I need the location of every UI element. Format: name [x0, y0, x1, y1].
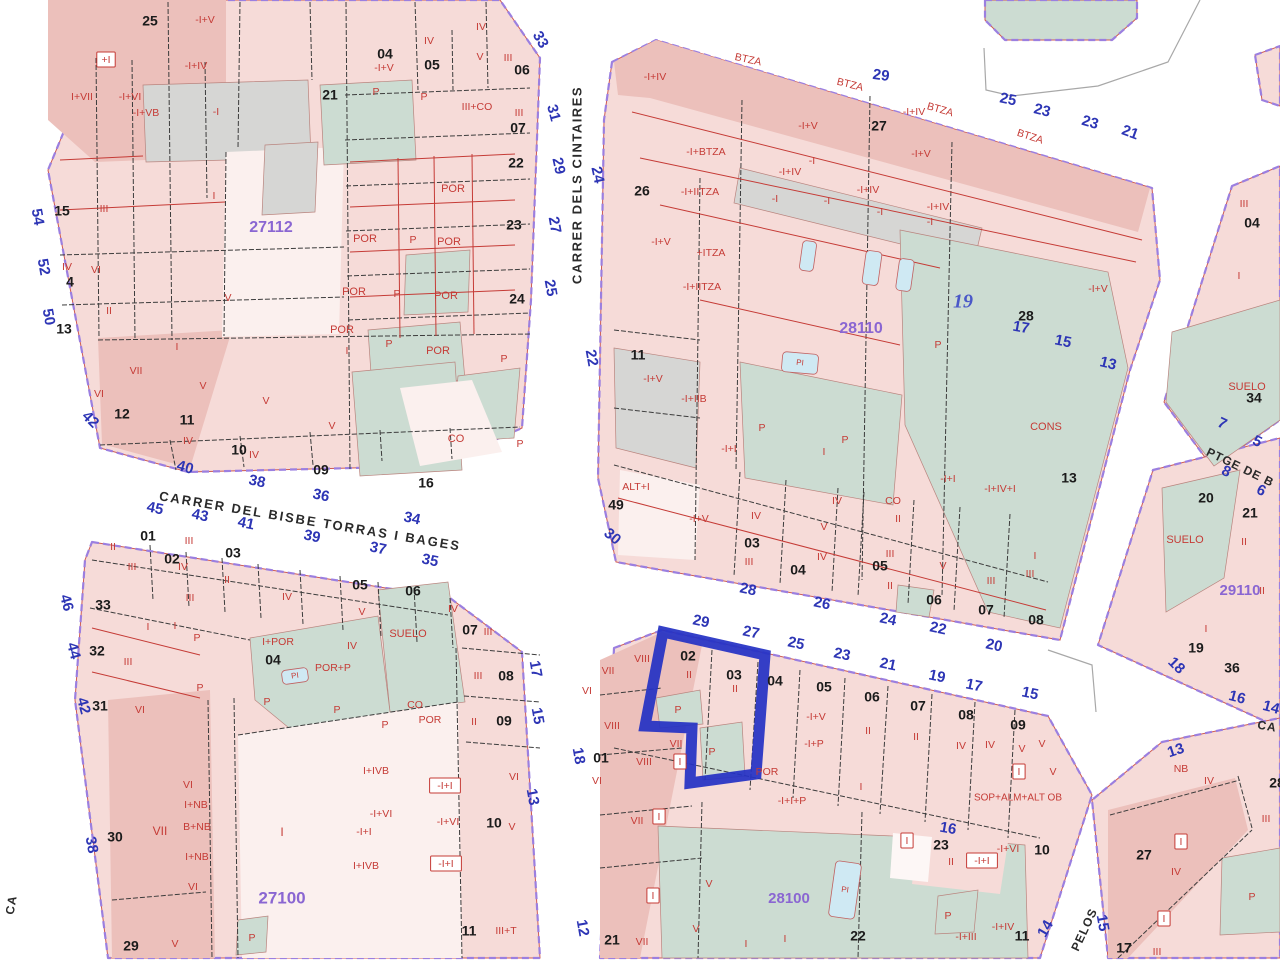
construction-code-label: -I+V — [643, 373, 663, 385]
construction-code-label: II — [1241, 536, 1247, 548]
parcel-number-label[interactable]: 06 — [864, 689, 880, 705]
street-number-label: 46 — [56, 593, 77, 614]
construction-code-label: I+IVB — [363, 765, 389, 777]
street-number-label: 21 — [1119, 122, 1140, 144]
construction-code-label: POR — [419, 714, 442, 726]
construction-code-label: I+IVB — [353, 860, 379, 872]
construction-code-label: P — [841, 434, 848, 446]
construction-code-label: I — [823, 446, 826, 458]
street-number-label: 35 — [420, 550, 440, 570]
construction-code-label: P — [409, 234, 416, 246]
construction-code-label: IV — [1204, 775, 1214, 787]
construction-code-label: -I+IV — [903, 106, 925, 118]
street-number-label: 23 — [832, 644, 852, 664]
construction-code-label: -I+I — [437, 780, 452, 792]
construction-code-label: I+POR — [262, 636, 294, 648]
construction-code-label: I — [658, 811, 661, 823]
pool-label: PI — [796, 358, 804, 368]
construction-code-label: -I — [772, 193, 778, 205]
construction-code-label: -I+IITZA — [681, 186, 719, 198]
construction-code-label: -I+I — [721, 443, 736, 455]
construction-code-label: I+VII — [71, 91, 93, 103]
construction-code-label: -I — [824, 195, 830, 207]
construction-code-label: POR — [342, 286, 366, 298]
street-number-label: 13 — [523, 787, 543, 806]
construction-code-label: I — [679, 756, 682, 768]
construction-code-label: -I+V — [806, 711, 826, 723]
construction-code-label: -I+IITZA — [683, 281, 721, 293]
construction-code-label: POR — [426, 345, 450, 357]
construction-code-label: -I+III — [955, 931, 976, 943]
construction-code-label: III — [515, 107, 524, 119]
construction-code-label: II — [471, 716, 477, 728]
construction-code-label: IV — [985, 739, 995, 751]
parcel-number-label[interactable]: 05 — [352, 577, 368, 593]
construction-code-label: III — [128, 561, 137, 573]
construction-code-label: -I+I+P — [778, 795, 807, 807]
construction-code-label: VIII — [634, 653, 650, 665]
construction-code-label: P — [500, 353, 507, 365]
construction-code-label: VI — [592, 775, 602, 787]
parcel-patch-grey — [614, 348, 700, 468]
parcel-number-label[interactable]: 07 — [510, 120, 526, 136]
construction-code-label: I — [1180, 836, 1183, 848]
construction-code-label: VII — [130, 365, 143, 377]
construction-code-label: -I+IV — [857, 184, 879, 196]
construction-code-label: -I+V — [195, 14, 215, 26]
street-number-label: 19 — [927, 666, 947, 686]
construction-code-label: I — [147, 621, 150, 633]
parcel-number-label[interactable]: 11 — [180, 412, 195, 428]
construction-code-label: III — [1026, 568, 1035, 580]
construction-code-label: IV — [751, 510, 761, 522]
parcel-number-label[interactable]: 07 — [910, 698, 926, 714]
construction-code-label: CO — [448, 433, 465, 445]
parcel-patch-cream — [238, 702, 462, 958]
construction-code-label: VII — [670, 738, 683, 750]
street-number-label: 40 — [175, 457, 196, 478]
construction-code-label: CONS — [1030, 421, 1062, 433]
construction-code-label: -I+IV — [927, 201, 949, 213]
construction-code-label: ALT+I — [622, 481, 650, 493]
annotation-number-label: 19 — [953, 291, 973, 313]
construction-code-label: V — [358, 606, 365, 618]
parcel-number-label[interactable]: 04 — [790, 562, 806, 578]
street-number-label: 23 — [1032, 100, 1052, 121]
block-number-label: 29110 — [1220, 582, 1261, 599]
parcel-number-label[interactable]: 27 — [871, 118, 887, 134]
street-number-label: 25 — [541, 278, 561, 297]
street-number-label: 25 — [998, 89, 1018, 109]
parcel-number-label[interactable]: 10 — [486, 815, 502, 831]
parcel-number-label[interactable]: 03 — [225, 545, 241, 561]
construction-code-label: V — [171, 938, 178, 950]
construction-code-label: P — [248, 932, 255, 944]
street-number-label: 29 — [872, 66, 891, 85]
parcel-number-label[interactable]: 21 — [604, 932, 620, 948]
street-number-label: 20 — [984, 635, 1004, 655]
construction-code-label: -I+IV — [644, 71, 666, 83]
construction-code-label: +ITZA — [697, 247, 726, 259]
street-name-label: CARRER DELS CINTAIRES — [569, 86, 584, 284]
parcel-number-label[interactable]: 29 — [123, 938, 139, 954]
construction-code-label: -I+VI — [437, 816, 459, 828]
street-number-label: 38 — [82, 835, 102, 854]
construction-code-label: I — [784, 933, 787, 945]
parcel-number-label[interactable]: 07 — [462, 622, 478, 638]
parcel-number-label[interactable]: 10 — [231, 442, 247, 458]
parcel-patch-green — [404, 250, 470, 315]
street-number-label: 54 — [28, 207, 48, 227]
construction-code-label: V — [939, 560, 946, 572]
construction-code-label: -I+V — [911, 148, 931, 160]
parcel-number-label[interactable]: 34 — [1246, 390, 1262, 406]
construction-code-label: I — [346, 345, 349, 357]
street-number-label: 29 — [548, 156, 568, 176]
parcel-patch-grey — [262, 142, 318, 215]
construction-code-label: III — [886, 548, 895, 560]
construction-code-label: VI — [91, 264, 101, 276]
construction-code-label: II — [865, 725, 871, 737]
construction-code-label: VII — [631, 815, 644, 827]
construction-code-label: IV — [183, 435, 193, 447]
construction-code-label: VIII — [604, 720, 620, 732]
parcel-number-label[interactable]: 08 — [958, 707, 974, 723]
construction-code-label: I — [745, 938, 748, 950]
construction-code-label: POR — [353, 233, 377, 245]
construction-code-label: I — [174, 620, 177, 632]
construction-code-label: -I — [877, 206, 883, 218]
construction-code-label: I — [1238, 270, 1241, 282]
construction-code-label: POR — [437, 236, 461, 248]
construction-code-label: I — [652, 890, 655, 902]
parcel-number-label[interactable]: 28 — [1269, 775, 1280, 791]
construction-code-label: +I — [101, 54, 110, 66]
parcel-number-label[interactable]: 06 — [514, 62, 530, 78]
construction-code-label: I+NB — [184, 799, 208, 811]
construction-code-label: POR — [434, 290, 458, 302]
cadastral-map[interactable]: PIPIPI250405062107222324154131211100916-… — [0, 0, 1280, 960]
parcel-number-label[interactable]: 11 — [462, 923, 477, 939]
construction-code-label: I — [906, 835, 909, 847]
construction-code-label: -I+BTZA — [686, 146, 725, 158]
construction-code-label: II — [224, 574, 230, 586]
construction-code-label: I — [1205, 623, 1208, 635]
construction-code-label: I — [860, 781, 863, 793]
parcel-number-label[interactable]: 10 — [1034, 842, 1050, 858]
construction-code-label: VII — [153, 824, 168, 838]
street-number-label: 15 — [1020, 683, 1040, 703]
construction-code-label: VI — [94, 388, 104, 400]
parcel-number-label[interactable]: 20 — [1198, 490, 1214, 506]
parcel-number-label[interactable]: 25 — [142, 13, 158, 29]
construction-code-label: III — [504, 52, 513, 64]
construction-code-label: I — [280, 825, 283, 839]
parcel-number-label[interactable]: 04 — [377, 46, 393, 62]
construction-code-label: V — [476, 51, 483, 63]
construction-code-label: P — [1248, 891, 1255, 903]
construction-code-label: -I — [809, 155, 815, 167]
construction-code-label: IV — [249, 449, 259, 461]
construction-code-label: III+CO — [462, 101, 493, 113]
construction-code-label: I — [1018, 766, 1021, 778]
construction-code-label: III — [124, 656, 133, 668]
construction-code-label: V — [1018, 743, 1025, 755]
construction-code-label: -I+I — [356, 826, 371, 838]
construction-code-label: V — [199, 380, 206, 392]
construction-code-label: III — [1153, 946, 1162, 958]
construction-code-label: -I+IV — [992, 921, 1014, 933]
construction-code-label: POR — [441, 183, 465, 195]
parcel-number-label[interactable]: 08 — [498, 668, 514, 684]
construction-code-label: V — [820, 521, 827, 533]
parcel-number-label[interactable]: 27 — [1136, 847, 1152, 863]
construction-code-label: P — [196, 682, 203, 694]
construction-code-label: P — [758, 422, 765, 434]
parcel-number-label[interactable]: 32 — [89, 643, 105, 659]
street-number-label: 52 — [34, 257, 54, 276]
block-number-label: 28100 — [768, 890, 810, 907]
construction-code-label: -I+VI — [119, 91, 141, 103]
street-number-label: 25 — [786, 633, 806, 653]
construction-code-label: -I+VI — [370, 808, 392, 820]
construction-code-label: III — [100, 203, 109, 215]
parcel-number-label[interactable]: 04 — [1244, 215, 1260, 231]
parcel-number-label[interactable]: 11 — [1015, 928, 1030, 944]
street-number-label: 17 — [964, 675, 984, 695]
street-number-label: 18 — [569, 746, 589, 765]
construction-code-label: II — [1259, 585, 1265, 597]
construction-code-label: I — [213, 190, 216, 202]
parcel-patch-green — [935, 890, 978, 934]
construction-code-label: POR — [756, 766, 779, 778]
parcel-number-label[interactable]: 4 — [66, 274, 74, 290]
construction-code-label: V — [1038, 738, 1045, 750]
construction-code-label: IV — [956, 740, 966, 752]
cadastral-map-page: PIPIPI250405062107222324154131211100916-… — [0, 0, 1280, 960]
construction-code-label: III — [987, 575, 996, 587]
construction-code-label: IV — [178, 561, 188, 573]
parcel-number-label[interactable]: 07 — [978, 602, 994, 618]
construction-code-label: II — [948, 856, 954, 868]
parcel-number-label[interactable]: 19 — [1188, 640, 1204, 656]
construction-code-label: SUELO — [389, 628, 427, 640]
block-number-label: 27100 — [258, 888, 305, 907]
street-number-label: 36 — [311, 485, 331, 505]
construction-code-label: IV — [62, 261, 72, 273]
parcel-number-label[interactable]: 03 — [744, 535, 760, 551]
parcel-number-label[interactable]: 30 — [107, 829, 123, 845]
construction-code-label: -I+IIB — [681, 393, 706, 405]
parcel-number-label[interactable]: 04 — [265, 652, 281, 668]
construction-code-label: P — [333, 704, 340, 716]
construction-code-label: -I+I — [974, 855, 989, 867]
street-number-label: 24 — [878, 609, 898, 629]
parcel-number-label[interactable]: 06 — [926, 592, 942, 608]
construction-code-label: II — [732, 683, 738, 695]
parcel-number-label[interactable]: 15 — [54, 203, 70, 219]
parcel-number-label[interactable]: 09 — [496, 713, 512, 729]
construction-code-label: VI — [188, 881, 198, 893]
parcel-number-label[interactable]: 12 — [114, 406, 130, 422]
construction-code-label: P — [385, 338, 392, 350]
construction-code-label: -I+V — [798, 120, 818, 132]
construction-code-label: -I+I — [940, 473, 955, 485]
construction-code-label: II — [913, 731, 919, 743]
block-number-label: 27112 — [249, 219, 293, 236]
construction-code-label: IV — [817, 551, 827, 563]
construction-code-label: P — [708, 746, 715, 758]
construction-code-label: III — [745, 556, 754, 568]
construction-code-label: III — [185, 535, 194, 547]
parcel-number-label[interactable]: 03 — [726, 667, 742, 683]
construction-code-label: P — [516, 438, 523, 450]
parcel-number-label[interactable]: 06 — [405, 583, 421, 599]
construction-code-label: P — [674, 704, 681, 716]
construction-code-label: VIII — [636, 756, 652, 768]
parcel-number-label[interactable]: 23 — [933, 837, 949, 853]
construction-code-label: NB — [1174, 763, 1189, 775]
construction-code-label: -I — [213, 106, 219, 118]
parcel-number-label[interactable]: 16 — [418, 475, 434, 491]
parcel-number-label[interactable]: 33 — [95, 597, 111, 613]
construction-code-label: P — [263, 696, 270, 708]
construction-code-label: BTZA — [836, 76, 865, 94]
parcel-number-label[interactable]: 21 — [1242, 505, 1258, 521]
parcel-number-label[interactable]: 21 — [322, 87, 338, 103]
construction-code-label: P — [381, 719, 388, 731]
construction-code-label: V — [224, 292, 231, 304]
construction-code-label: II — [686, 669, 692, 681]
construction-code-label: IV — [448, 603, 458, 615]
street-number-label: 27 — [741, 622, 761, 642]
construction-code-label: VI — [509, 771, 519, 783]
parcel-number-label[interactable]: 13 — [1061, 470, 1077, 486]
construction-code-label: I — [1163, 913, 1166, 925]
construction-code-label: VI — [582, 685, 592, 697]
parcel-number-label[interactable]: 09 — [313, 462, 329, 478]
construction-code-label: V — [508, 821, 515, 833]
street-number-label: 15 — [528, 706, 548, 725]
parcel-number-label[interactable]: 05 — [872, 558, 888, 574]
construction-code-label: III+T — [495, 925, 517, 937]
construction-code-label: -I+V — [374, 62, 394, 74]
construction-code-label: SOP+ALM+ALT OB — [974, 793, 1062, 804]
construction-code-label: CO — [885, 495, 901, 507]
construction-code-label: -I+V — [651, 236, 671, 248]
parcel-number-label[interactable]: 01 — [593, 750, 609, 766]
construction-code-label: -I+IV — [185, 60, 207, 72]
construction-code-label: -I+IV+I — [984, 483, 1016, 495]
construction-code-label: II — [887, 580, 893, 592]
street-number-label: 28 — [738, 579, 758, 599]
street-edge-line — [1048, 650, 1096, 712]
street-number-label: 34 — [402, 508, 422, 528]
construction-code-label: V — [692, 923, 699, 935]
parcel-number-label[interactable]: 23 — [506, 217, 522, 233]
block-top-corner-green — [985, 0, 1137, 40]
construction-code-label: P — [193, 632, 200, 644]
construction-code-label: II — [110, 541, 116, 553]
construction-code-label: IV — [1171, 866, 1181, 878]
parcel-number-label[interactable]: 49 — [608, 497, 624, 513]
block-number-label: 28110 — [839, 320, 883, 337]
construction-code-label: -I+I — [438, 858, 453, 870]
construction-code-label: I — [1034, 550, 1037, 562]
parcel-number-label[interactable]: 09 — [1010, 717, 1026, 733]
construction-code-label: II — [106, 305, 112, 317]
street-number-label: 15 — [1053, 331, 1073, 351]
parcel-number-label[interactable]: 08 — [1028, 612, 1044, 628]
parcel-number-label[interactable]: 04 — [767, 673, 783, 689]
construction-code-label: III — [1240, 198, 1249, 210]
street-number-label: 12 — [573, 918, 593, 937]
street-number-label: 16 — [938, 819, 957, 839]
construction-code-label: IV — [424, 35, 434, 47]
construction-code-label: -I+IV — [779, 166, 801, 178]
parcel-number-label[interactable]: 17 — [1116, 940, 1132, 956]
construction-code-label: V — [1049, 766, 1056, 778]
construction-code-label: BTZA — [1015, 127, 1044, 147]
construction-code-label: VII — [602, 665, 615, 677]
parcel-number-label[interactable]: 05 — [424, 57, 440, 73]
construction-code-label: IV — [832, 495, 842, 507]
construction-code-label: P — [944, 910, 951, 922]
street-number-label: 38 — [247, 471, 267, 491]
construction-code-label: POR+P — [315, 662, 351, 674]
street-name-label: CA — [3, 894, 20, 915]
parcel-number-label[interactable]: 11 — [631, 347, 646, 363]
construction-code-label: BTZA — [926, 100, 955, 119]
street-number-label: 26 — [812, 593, 832, 613]
construction-code-label: V — [705, 878, 712, 890]
construction-code-label: III — [1262, 813, 1271, 825]
construction-code-label: III — [186, 592, 195, 604]
parcel-number-label[interactable]: 22 — [850, 928, 866, 944]
parcel-number-label[interactable]: 36 — [1224, 660, 1240, 676]
street-number-label: 17 — [1011, 318, 1030, 338]
construction-code-label: -I+VI — [997, 843, 1019, 855]
parcel-number-label[interactable]: 24 — [509, 291, 525, 307]
parcel-number-label[interactable]: 05 — [816, 679, 832, 695]
pool-label: PI — [291, 671, 300, 681]
construction-code-label: II — [895, 513, 901, 525]
construction-code-label: IV — [476, 21, 486, 33]
construction-code-label: IV — [282, 591, 292, 603]
pool-label: PI — [841, 885, 850, 895]
construction-code-label: V — [328, 420, 335, 432]
parcel-number-label[interactable]: 26 — [634, 183, 650, 199]
parcel-number-label[interactable]: 02 — [680, 648, 696, 664]
construction-code-label: VII — [636, 936, 649, 948]
street-number-label: 17 — [526, 659, 546, 678]
parcel-number-label[interactable]: 01 — [140, 528, 156, 544]
construction-code-label: -I — [927, 216, 933, 228]
parcel-number-label[interactable]: 22 — [508, 155, 524, 171]
street-number-label: 23 — [1080, 112, 1101, 133]
construction-code-label: SUELO — [1166, 534, 1204, 546]
construction-code-label: III — [474, 670, 483, 682]
street-number-label: 50 — [39, 307, 59, 326]
construction-code-label: P — [934, 339, 941, 351]
construction-code-label: P — [420, 91, 427, 103]
construction-code-label: V — [262, 395, 269, 407]
construction-code-label: -I+VB — [133, 107, 160, 119]
street-number-label: 27 — [545, 215, 565, 234]
construction-code-label: P — [393, 288, 400, 300]
street-number-label: 21 — [878, 654, 898, 674]
construction-code-label: VI — [135, 704, 145, 716]
